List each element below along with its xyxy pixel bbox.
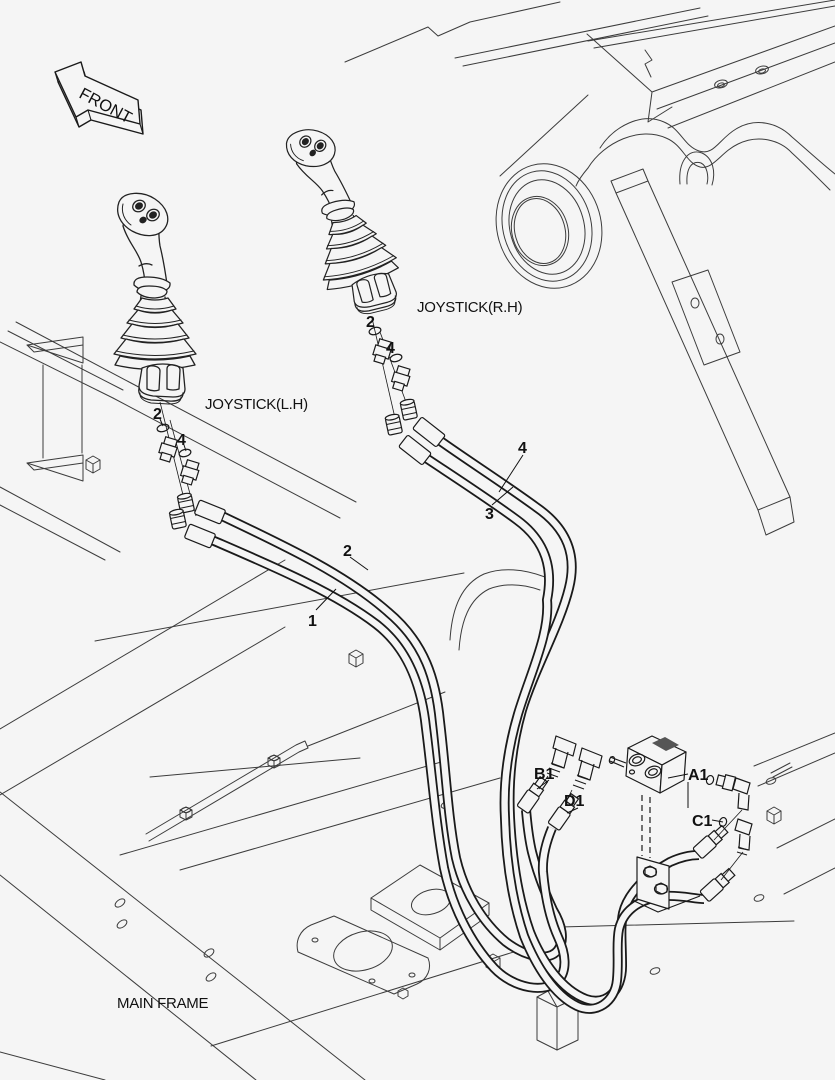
svg-text:JOYSTICK(R.H): JOYSTICK(R.H) — [417, 299, 523, 316]
svg-text:3: 3 — [485, 506, 494, 523]
svg-text:2: 2 — [153, 406, 162, 423]
svg-text:JOYSTICK(L.H): JOYSTICK(L.H) — [205, 396, 308, 413]
svg-text:4: 4 — [177, 432, 186, 449]
svg-text:C1: C1 — [692, 813, 713, 830]
svg-text:A1: A1 — [688, 767, 709, 784]
svg-text:2: 2 — [343, 543, 352, 560]
svg-text:B1: B1 — [534, 766, 555, 783]
svg-text:4: 4 — [518, 440, 527, 457]
svg-text:2: 2 — [366, 314, 375, 331]
svg-text:D1: D1 — [564, 793, 585, 810]
svg-text:MAIN FRAME: MAIN FRAME — [117, 995, 208, 1012]
svg-text:4: 4 — [386, 340, 395, 357]
svg-text:1: 1 — [308, 613, 317, 630]
